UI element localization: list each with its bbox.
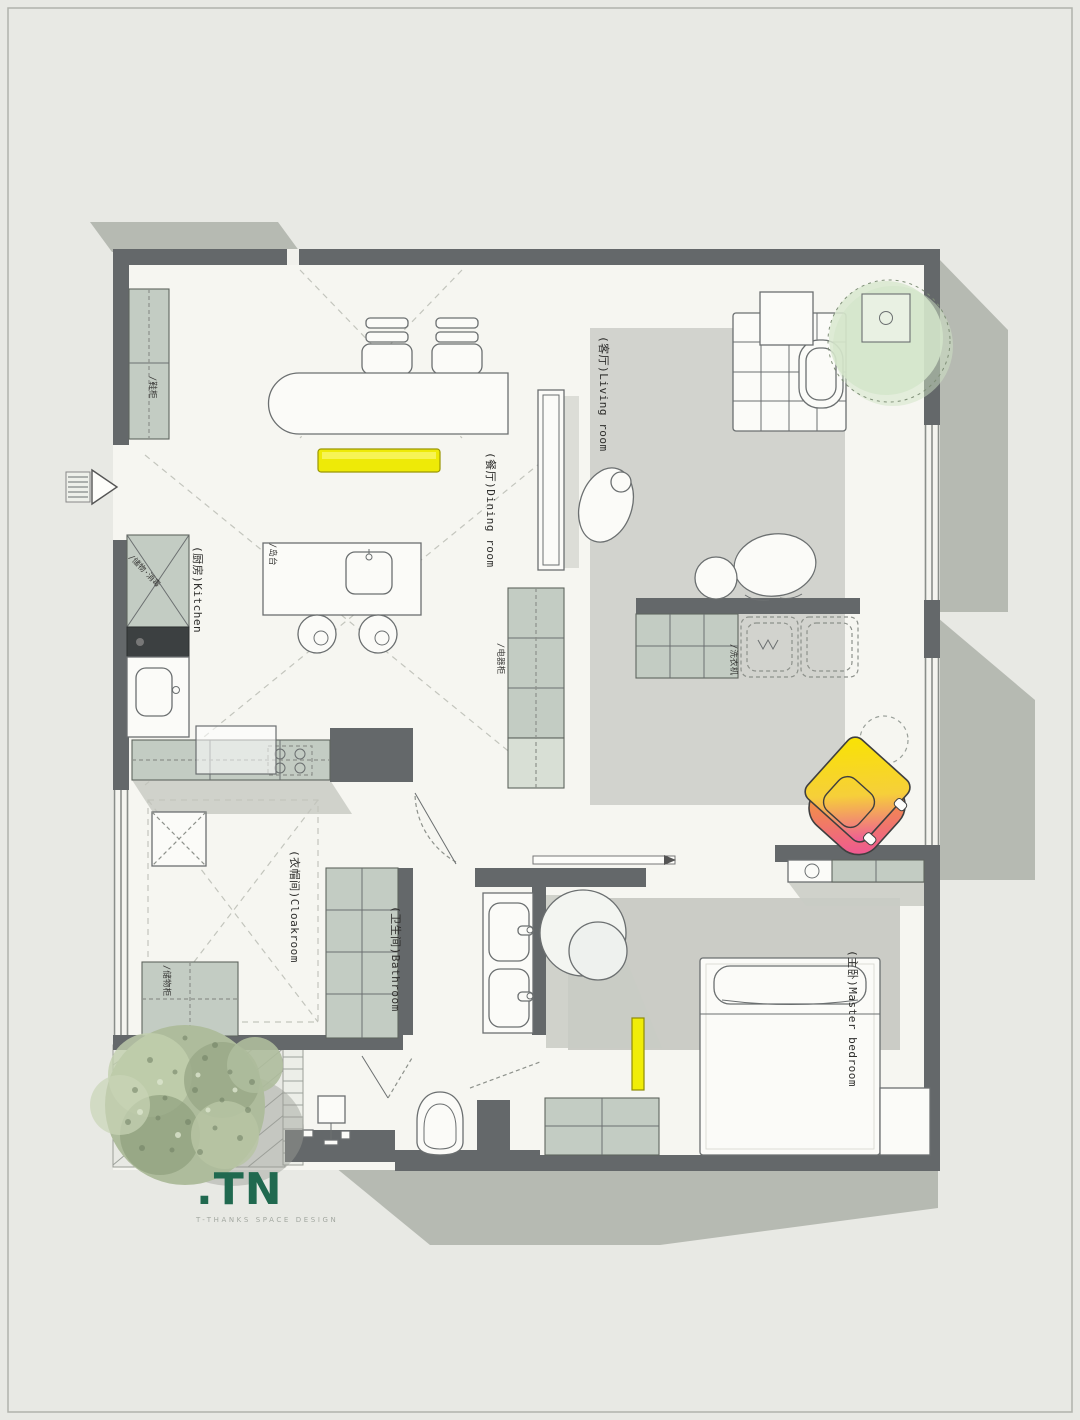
toilet — [417, 1092, 463, 1155]
wall-top-left — [113, 249, 287, 265]
bedroom-console — [788, 860, 924, 882]
corner-side-table — [862, 294, 910, 342]
dining-chair-2 — [432, 318, 482, 374]
wall-top — [299, 249, 940, 265]
floor-plan-canvas: (客厅)Living room (餐厅)Dining room (厨房)Kitc… — [0, 0, 1080, 1420]
yellow-bench — [318, 449, 440, 472]
pouf-round — [695, 557, 737, 599]
range-hood — [196, 726, 276, 774]
room-label-master-bedroom: (主卧)Master bedroom — [845, 950, 861, 1087]
kitchen-island — [263, 543, 421, 615]
wall-joint-gap — [287, 249, 299, 265]
vanity-sink-2 — [489, 969, 533, 1027]
dining-chair-1 — [362, 318, 412, 374]
island-sink — [346, 549, 392, 594]
annotation-shoe-cabinet: /鞋柜 — [147, 376, 159, 399]
bedside-bench — [880, 1088, 930, 1155]
tv-partition — [538, 390, 564, 570]
wall-bath-bottom — [395, 1150, 540, 1171]
wall-bath-divider — [532, 887, 546, 1035]
wall-left-upper — [113, 249, 129, 445]
cloakroom-storage-cabinet — [142, 962, 238, 1036]
floor-lamp-bar — [632, 1018, 644, 1090]
vanity-sink-1 — [489, 903, 533, 961]
room-label-bathroom: (卫生间)Bathroom — [388, 906, 404, 1012]
room-label-living-room: (客厅)Living room — [596, 336, 612, 452]
bedroom-wardrobe — [545, 1098, 659, 1155]
wall-toilet-nook — [477, 1100, 510, 1156]
annotation-storage-cabinet: /储物柜 — [161, 965, 173, 996]
dining-table — [268, 373, 508, 434]
appliance-tall-cabinet — [508, 588, 564, 788]
room-label-kitchen: (厨房)Kitchen — [190, 546, 206, 633]
cloakroom-ottoman — [152, 812, 206, 866]
entry-arrow-icon — [66, 470, 117, 504]
shoe-cabinet — [129, 289, 169, 439]
room-label-cloakroom: (衣帽间)Cloakroom — [287, 850, 303, 963]
wall-right-mid — [924, 600, 940, 658]
wall-bottom — [540, 1155, 940, 1171]
wall-living-console — [636, 598, 860, 614]
floor-plan-drawing — [0, 0, 1080, 1420]
bar-stool-1 — [298, 615, 336, 653]
wall-kitchen-block — [330, 728, 413, 782]
logo-tagline: T-THANKS SPACE DESIGN — [196, 1216, 338, 1224]
logo-mark: .TN — [196, 1168, 338, 1212]
bathroom-vanity — [483, 893, 533, 1033]
media-cabinet — [636, 614, 738, 678]
annotation-island: /岛台 — [267, 543, 279, 566]
sliding-door — [533, 855, 676, 865]
bar-stool-2 — [359, 615, 397, 653]
room-label-dining-room: (餐厅)Dining room — [483, 452, 499, 568]
kitchen-cooktop-dark — [127, 627, 189, 657]
annotation-appliance-cabinet: /电器柜 — [495, 643, 507, 674]
sofa-side-table — [760, 292, 813, 345]
wall-vanity — [475, 868, 646, 887]
annotation-washing-machine: /洗衣机 — [728, 644, 740, 675]
logo: .TN T-THANKS SPACE DESIGN — [196, 1168, 338, 1224]
pillow — [714, 966, 866, 1004]
kitchen-sink-cabinet — [127, 657, 189, 737]
